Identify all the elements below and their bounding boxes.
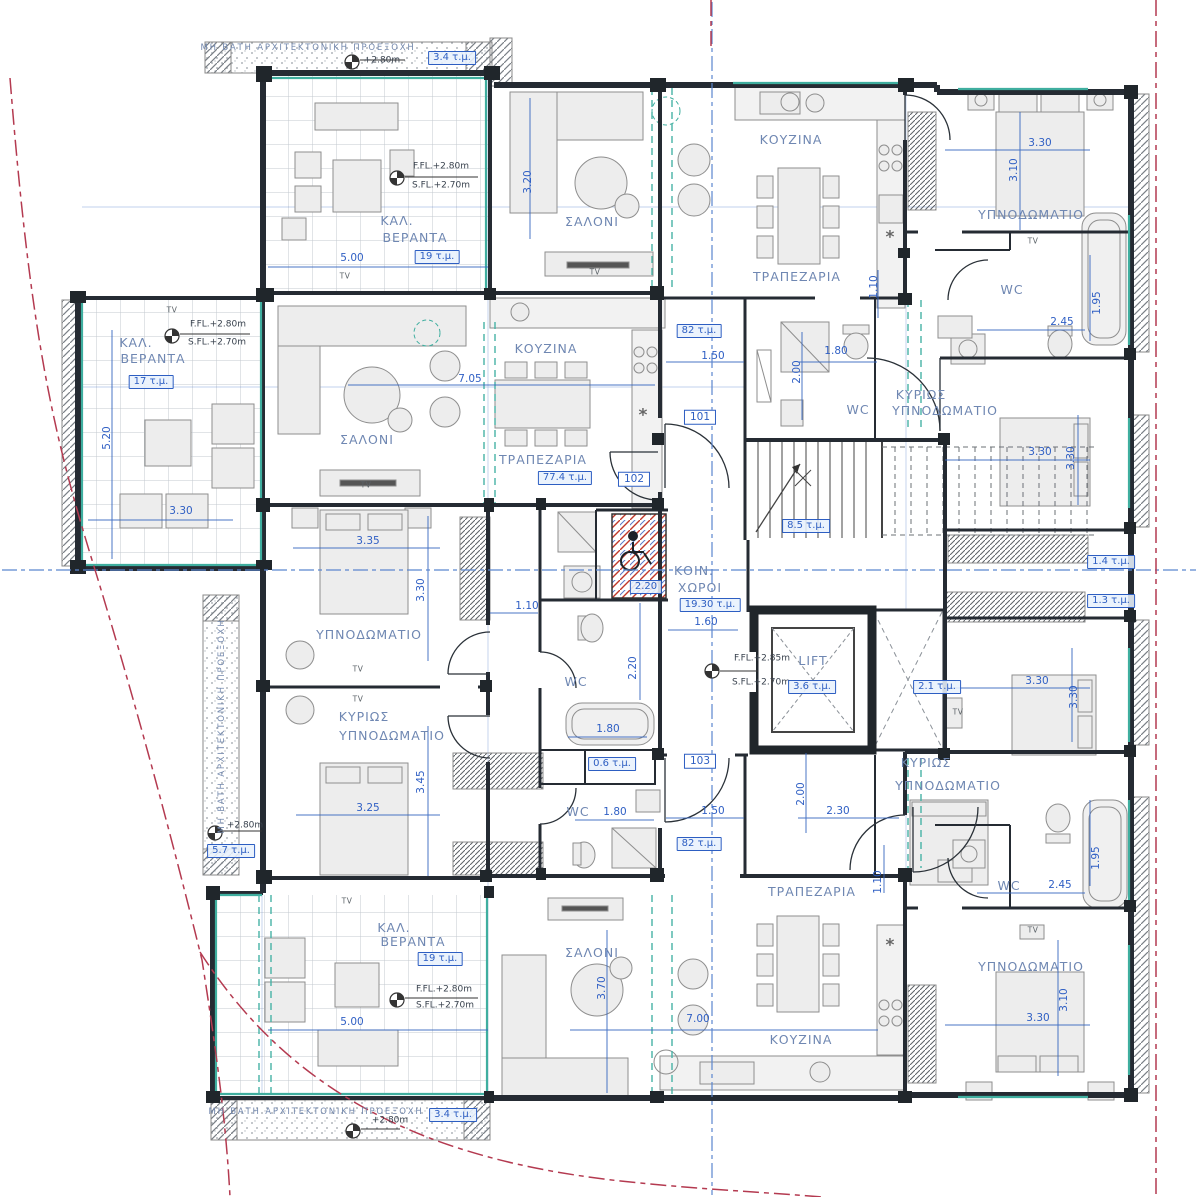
room-label: ΚΑΛ.: [380, 215, 413, 228]
level-label: F.FL.+2.80m: [413, 163, 469, 172]
level-label: S.FL.+2.70m: [732, 679, 790, 688]
room-label: ΤΡΑΠΕΖΑΡΙΑ: [499, 454, 587, 467]
dimension-label: 1.95: [1092, 291, 1103, 314]
dimension-label: 7.05: [458, 374, 481, 385]
area-badge: 19 τ.μ.: [418, 952, 463, 966]
unit-number-badge: 101: [684, 410, 716, 425]
room-label: ΚΑΛ.: [119, 337, 152, 350]
unit-number-badge: 102: [618, 472, 650, 487]
area-badge: 2.1 τ.μ.: [913, 680, 961, 694]
room-label: WC: [997, 880, 1020, 893]
room-label: ΒΕΡΑΝΤΑ: [120, 353, 185, 366]
room-label: ΤΡΑΠΕΖΑΡΙΑ: [768, 886, 856, 899]
tv-label: TV: [590, 268, 601, 276]
room-label: ΚΟΥΖΙΝΑ: [760, 134, 823, 147]
area-badge: 19 τ.μ.: [415, 250, 460, 264]
dimension-label: 3.30: [1066, 446, 1077, 469]
dimension-label: 3.30: [169, 506, 192, 517]
dimension-label: 3.45: [416, 770, 427, 793]
room-label: ΚΑΛ.: [377, 922, 410, 935]
room-label: ΒΕΡΑΝΤΑ: [382, 232, 447, 245]
dimension-label: 7.00: [686, 1014, 709, 1025]
dimension-label: 1.50: [701, 351, 724, 362]
dimension-label: 3.30: [1028, 447, 1051, 458]
projection-label: ΜΗ ΒΑΤΗ ΑΡΧΙΤΕΚΤΟΝΙΚΗ ΠΡΟΕΞΟΧΗ: [200, 44, 415, 53]
dimension-label: 3.20: [523, 170, 534, 193]
room-label: ΥΠΝΟΔΩΜΑΤΙΟ: [316, 629, 422, 642]
area-badge: 3.6 τ.μ.: [788, 680, 836, 694]
area-badge: 3.4 τ.μ.: [428, 51, 476, 65]
room-label: ΣΑΛΟΝΙ: [565, 947, 619, 960]
dimension-label: 3.30: [1069, 685, 1080, 708]
dimension-label: 3.30: [1028, 138, 1051, 149]
area-badge: 3.4 τ.μ.: [429, 1108, 477, 1122]
area-badge: 19.30 τ.μ.: [680, 598, 741, 612]
dimension-label: 1.80: [603, 807, 626, 818]
room-label: ΥΠΝΟΔΩΜΑΤΙΟ: [978, 961, 1084, 974]
area-badge: 17 τ.μ.: [129, 375, 174, 389]
level-label: +2.80m: [364, 57, 400, 66]
room-label: ΥΠΝΟΔΩΜΑΤΙΟ: [892, 405, 998, 418]
dimension-label: 5.00: [340, 253, 363, 264]
dimension-label: 1.80: [596, 724, 619, 735]
level-label: F.FL.+2.80m: [190, 321, 246, 330]
dimension-label: 1.10: [873, 870, 884, 893]
dimension-label: 1.50: [701, 806, 724, 817]
dimension-label: 1.80: [824, 346, 847, 357]
dimension-label: 3.30: [1026, 1013, 1049, 1024]
dimension-label: 1.10: [515, 601, 538, 612]
area-badge: 1.4 τ.μ.: [1087, 555, 1135, 569]
dimension-label: 3.70: [597, 976, 608, 999]
room-label: ΧΩΡΟΙ: [678, 582, 722, 595]
dimension-label: 1.10: [869, 275, 880, 298]
room-label: ΚΥΡΙΩΣ: [901, 757, 952, 770]
tv-label: TV: [340, 272, 351, 280]
unit-number-badge: 103: [684, 754, 716, 769]
area-badge: 1.3 τ.μ.: [1087, 594, 1135, 608]
dimension-label: 3.30: [1025, 676, 1048, 687]
level-label: S.FL.+2.70m: [188, 339, 246, 348]
room-label: ΚΥΡΙΩΣ: [339, 711, 390, 724]
tv-label: TV: [342, 897, 353, 905]
room-label: WC: [846, 404, 869, 417]
dimension-label: 2.20: [628, 656, 639, 679]
dimension-label: 3.35: [356, 536, 379, 547]
room-label: ΥΠΝΟΔΩΜΑΤΙΟ: [978, 209, 1084, 222]
room-label: ΚΟΙΝ.: [674, 565, 714, 578]
area-badge: 82 τ.μ.: [677, 324, 722, 338]
level-label: F.FL.+2.80m: [416, 986, 472, 995]
area-badge: 2.20: [630, 580, 662, 594]
dimension-label: 2.00: [792, 360, 803, 383]
room-label: ΚΟΥΖΙΝΑ: [515, 343, 578, 356]
appliance-symbol: *: [886, 230, 895, 247]
dimension-label: 3.10: [1059, 988, 1070, 1011]
room-label: ΚΟΥΖΙΝΑ: [770, 1034, 833, 1047]
level-label: F.FL.+2.85m: [734, 655, 790, 664]
room-label: LIFT: [798, 655, 827, 668]
appliance-symbol: *: [639, 408, 648, 425]
room-label: ΣΑΛΟΝΙ: [565, 216, 619, 229]
room-label: ΥΠΝΟΔΩΜΑΤΙΟ: [895, 780, 1001, 793]
tv-label: TV: [1028, 926, 1039, 934]
room-label: WC: [1000, 284, 1023, 297]
tv-label: TV: [953, 708, 964, 716]
room-label: ΒΕΡΑΝΤΑ: [380, 936, 445, 949]
level-label: S.FL.+2.70m: [412, 182, 470, 191]
dimension-label: 1.95: [1091, 846, 1102, 869]
tv-label: TV: [353, 695, 364, 703]
room-label: ΥΠΝΟΔΩΜΑΤΙΟ: [339, 730, 445, 743]
dimension-label: 2.00: [796, 782, 807, 805]
room-label: ΤΡΑΠΕΖΑΡΙΑ: [753, 271, 841, 284]
dimension-label: 2.45: [1050, 317, 1073, 328]
tv-label: TV: [1028, 237, 1039, 245]
dimension-label: 2.45: [1048, 880, 1071, 891]
room-label: ΣΑΛΟΝΙ: [340, 434, 394, 447]
appliance-symbol: *: [886, 938, 895, 955]
room-label: WC: [564, 676, 587, 689]
level-label: S.FL.+2.70m: [416, 1002, 474, 1011]
tv-label: TV: [361, 481, 372, 489]
dimension-label: 1.60: [694, 617, 717, 628]
projection-label: ΜΗ ΒΑΤΗ ΑΡΧΙΤΕΚΤΟΝΙΚΗ ΠΡΟΕΞΟΧΗ: [218, 618, 227, 833]
area-badge: 5.7 τ.μ.: [207, 844, 255, 858]
floor-plan-page: ΜΗ ΒΑΤΗ ΑΡΧΙΤΕΚΤΟΝΙΚΗ ΠΡΟΕΞΟΧΗ+2.80m3.4 …: [0, 0, 1200, 1197]
room-label: ΚΥΡΙΩΣ: [896, 389, 947, 402]
tv-label: TV: [167, 306, 178, 314]
dimension-label: 2.30: [826, 806, 849, 817]
dimension-label: 5.20: [102, 426, 113, 449]
tv-label: TV: [353, 665, 364, 673]
area-badge: 77.4 τ.μ.: [538, 471, 592, 485]
dimension-label: 3.30: [416, 578, 427, 601]
area-badge: 0.6 τ.μ.: [588, 757, 636, 771]
dimension-label: 5.00: [340, 1017, 363, 1028]
area-badge: 82 τ.μ.: [677, 837, 722, 851]
room-label: WC: [566, 806, 589, 819]
level-label: +2.80m: [372, 1117, 408, 1126]
level-label: +2.80m: [227, 822, 263, 831]
dimension-label: 3.10: [1009, 158, 1020, 181]
area-badge: 8.5 τ.μ.: [782, 519, 830, 533]
annotation-layer: ΜΗ ΒΑΤΗ ΑΡΧΙΤΕΚΤΟΝΙΚΗ ΠΡΟΕΞΟΧΗ+2.80m3.4 …: [0, 0, 1200, 1197]
dimension-label: 3.25: [356, 803, 379, 814]
